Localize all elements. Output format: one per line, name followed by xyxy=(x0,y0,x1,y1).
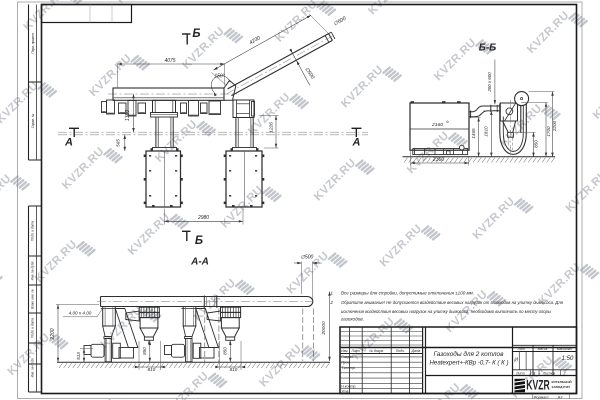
svg-text:Подп. и дата: Подп. и дата xyxy=(31,318,35,338)
svg-text:850: 850 xyxy=(534,140,539,148)
svg-text:2160: 2160 xyxy=(431,122,443,128)
svg-text:810: 810 xyxy=(148,367,156,372)
svg-text:Обратите внимание! Не допускае: Обратите внимание! Не допускается воздей… xyxy=(341,299,563,305)
svg-text:Газоходы для 2 котлов: Газоходы для 2 котлов xyxy=(434,350,505,358)
svg-text:1465: 1465 xyxy=(471,128,476,139)
svg-text:Лит.: Лит. xyxy=(517,347,526,351)
svg-text:2360: 2360 xyxy=(432,157,444,163)
svg-text:2: 2 xyxy=(563,371,566,375)
svg-text:А3: А3 xyxy=(557,396,564,400)
svg-text:Утв.: Утв. xyxy=(341,390,349,394)
svg-text:200 х 600: 200 х 600 xyxy=(487,72,492,93)
svg-text:1: 1 xyxy=(330,291,333,296)
svg-text:1226: 1226 xyxy=(268,122,274,133)
svg-text:Б: Б xyxy=(192,28,200,40)
svg-text:20000: 20000 xyxy=(321,321,327,336)
svg-text:1700: 1700 xyxy=(546,126,551,137)
svg-text:Б: Б xyxy=(195,235,203,247)
svg-text:1: 1 xyxy=(534,371,536,375)
svg-text:2980: 2980 xyxy=(197,215,209,221)
svg-text:Взам. инв. №: Взам. инв. № xyxy=(31,289,35,309)
svg-text:Все размеры для стройки, допус: Все размеры для стройки, допустимые откл… xyxy=(341,290,474,296)
svg-text:2: 2 xyxy=(329,300,333,305)
svg-text:Лист: Лист xyxy=(351,349,361,353)
svg-text:исключения воздействия весовых: исключения воздействия весовых нагрузок … xyxy=(341,308,552,314)
svg-text:2200: 2200 xyxy=(552,120,557,132)
svg-text:Пров.: Пров. xyxy=(341,361,350,365)
svg-text:4.00 х 4.00: 4.00 х 4.00 xyxy=(69,311,92,316)
svg-text:565: 565 xyxy=(116,139,121,147)
svg-text:Изм.: Изм. xyxy=(341,349,348,353)
svg-text:KVZR: KVZR xyxy=(526,376,550,392)
svg-text:Heatexpert+-КВр -0,7- К ( К ): Heatexpert+-КВр -0,7- К ( К ) xyxy=(430,360,509,367)
svg-text:810: 810 xyxy=(230,367,238,372)
svg-text:Дата: Дата xyxy=(411,349,421,353)
svg-text:КОТЕЛЬНЫЙ: КОТЕЛЬНЫЙ xyxy=(552,380,573,384)
svg-text:А-А: А-А xyxy=(190,257,209,268)
svg-text:Т.контр.: Т.контр. xyxy=(341,366,356,370)
svg-text:Б-Б: Б-Б xyxy=(479,43,497,54)
svg-text:ЗАВОД РЭП: ЗАВОД РЭП xyxy=(552,385,571,389)
svg-text:2200: 2200 xyxy=(50,328,56,340)
svg-text:1810: 1810 xyxy=(484,126,489,137)
svg-text:1350: 1350 xyxy=(125,110,131,121)
svg-text:Н.контр.: Н.контр. xyxy=(341,384,356,388)
svg-text:Инв. № подл.: Инв. № подл. xyxy=(31,357,35,377)
svg-text:№ докум.: № докум. xyxy=(369,349,384,353)
svg-text:Справ. №: Справ. № xyxy=(31,113,35,128)
svg-text:Перв. примен.: Перв. примен. xyxy=(31,32,35,53)
svg-text:Масштаб: Масштаб xyxy=(557,347,573,351)
svg-text:513: 513 xyxy=(76,352,81,360)
svg-text:Подп. и дата: Подп. и дата xyxy=(31,221,35,241)
svg-text:И: И xyxy=(514,358,518,364)
svg-text:850: 850 xyxy=(223,347,228,355)
svg-text:А: А xyxy=(352,137,361,149)
svg-text:Инв. № дубл.: Инв. № дубл. xyxy=(31,261,35,281)
svg-text:Листов: Листов xyxy=(542,371,556,375)
svg-text:∅500: ∅500 xyxy=(301,255,314,261)
svg-text:Подп.: Подп. xyxy=(396,349,405,353)
svg-text:1:50: 1:50 xyxy=(562,356,574,362)
svg-text:Разраб.: Разраб. xyxy=(341,355,354,359)
svg-text:4075: 4075 xyxy=(164,58,175,64)
svg-text:Лист: Лист xyxy=(515,371,525,375)
svg-text:Формат: Формат xyxy=(533,396,548,400)
svg-text:850: 850 xyxy=(142,347,147,355)
svg-text:газоходов.: газоходов. xyxy=(341,316,364,321)
svg-text:Масса: Масса xyxy=(538,347,548,351)
svg-text:150°: 150° xyxy=(214,74,224,80)
svg-text:А: А xyxy=(64,137,73,149)
